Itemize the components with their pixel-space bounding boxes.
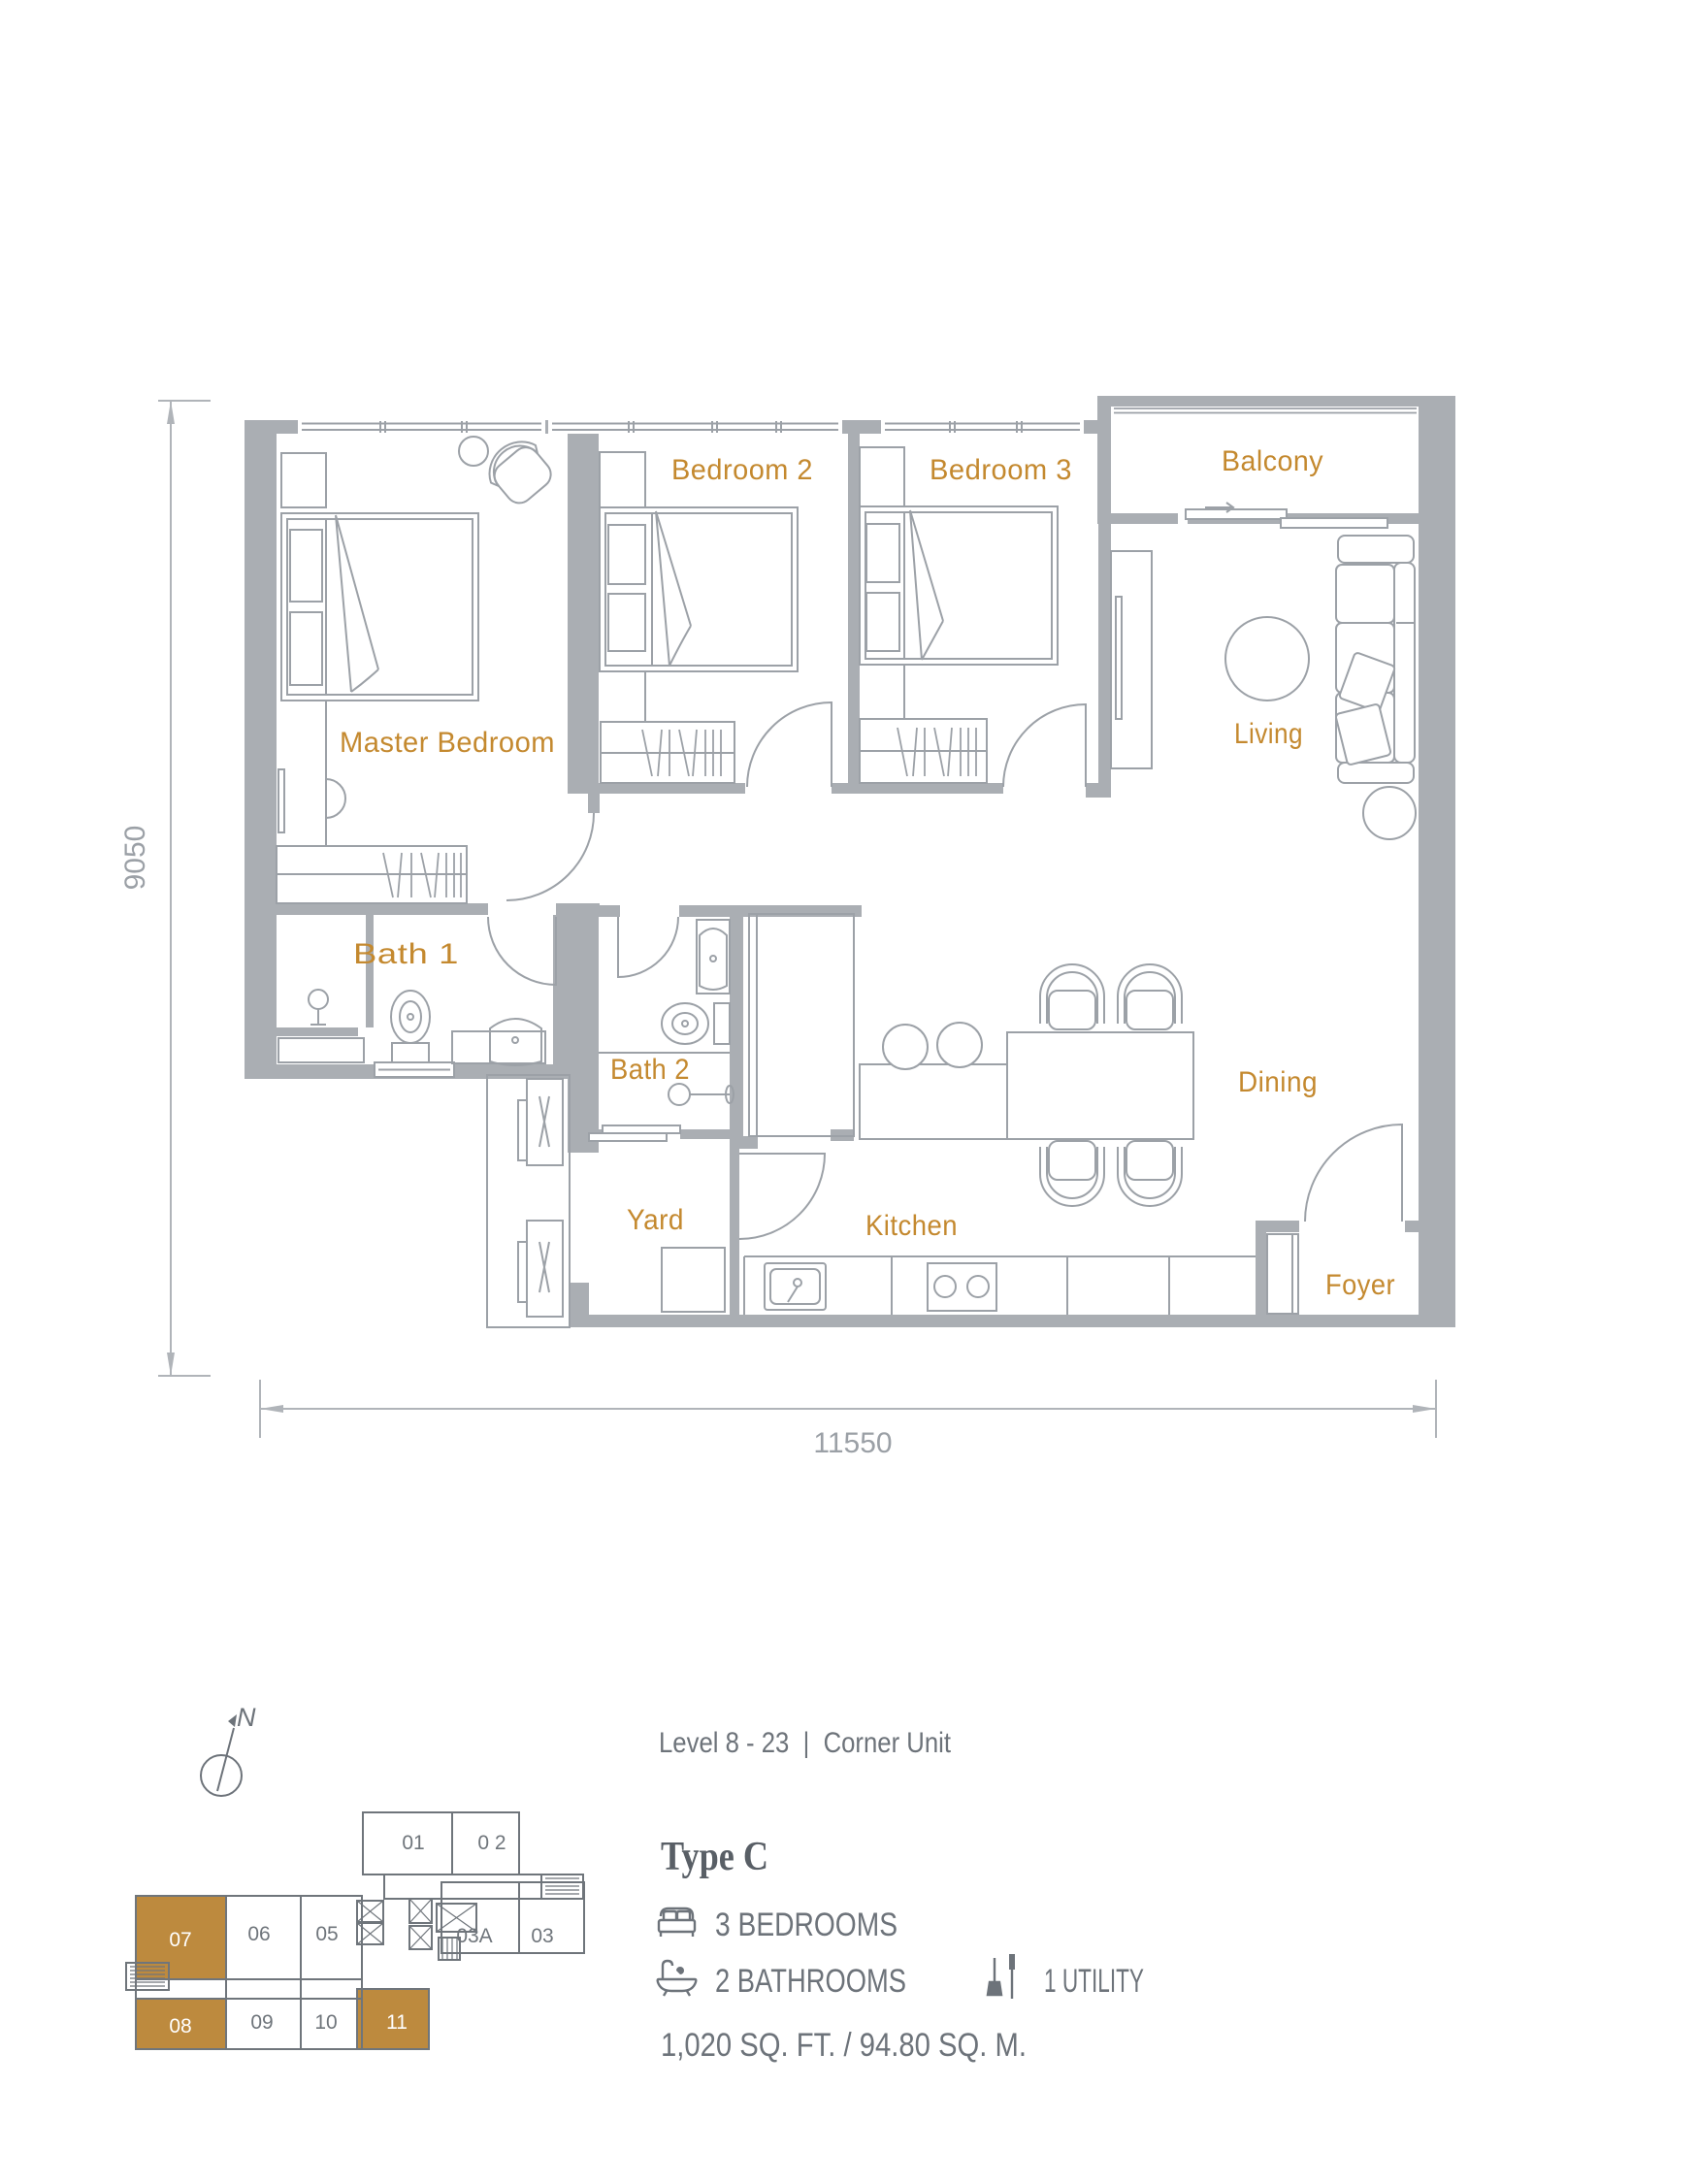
svg-text:Living: Living — [1234, 718, 1303, 750]
svg-text:Bedroom 3: Bedroom 3 — [930, 454, 1072, 486]
svg-text:Balcony: Balcony — [1222, 445, 1323, 477]
svg-text:09: 09 — [250, 2011, 273, 2034]
svg-text:01: 01 — [402, 1832, 424, 1854]
svg-text:08: 08 — [169, 2015, 191, 2037]
svg-text:11550: 11550 — [813, 1427, 892, 1459]
svg-text:07: 07 — [169, 1929, 191, 1951]
svg-text:05: 05 — [315, 1923, 338, 1945]
svg-text:Bath 1: Bath 1 — [353, 938, 459, 970]
svg-text:03A: 03A — [456, 1925, 492, 1947]
svg-text:10: 10 — [314, 2011, 337, 2034]
svg-text:N: N — [237, 1703, 256, 1732]
svg-text:03: 03 — [531, 1925, 553, 1947]
svg-text:Level 8 - 23 | Corner Unit: Level 8 - 23 | Corner Unit — [659, 1727, 952, 1759]
svg-text:11: 11 — [386, 2011, 408, 2034]
svg-text:0 2: 0 2 — [477, 1832, 506, 1854]
svg-text:06: 06 — [247, 1923, 270, 1945]
svg-text:Yard: Yard — [627, 1204, 684, 1236]
svg-text:9050: 9050 — [119, 826, 151, 891]
svg-text:Kitchen: Kitchen — [865, 1210, 958, 1242]
svg-text:Foyer: Foyer — [1325, 1269, 1395, 1301]
svg-text:Bath 2: Bath 2 — [610, 1054, 690, 1086]
svg-text:Dining: Dining — [1238, 1066, 1318, 1098]
svg-text:2 BATHROOMS: 2 BATHROOMS — [715, 1963, 906, 2000]
svg-text:Bedroom 2: Bedroom 2 — [671, 454, 813, 486]
svg-text:1 UTILITY: 1 UTILITY — [1044, 1963, 1144, 2000]
svg-text:Type C: Type C — [661, 1835, 768, 1879]
svg-text:3 BEDROOMS: 3 BEDROOMS — [715, 1907, 897, 1943]
svg-text:Master Bedroom: Master Bedroom — [340, 727, 555, 759]
svg-text:1,020 SQ. FT. / 94.80 SQ. M.: 1,020 SQ. FT. / 94.80 SQ. M. — [661, 2027, 1027, 2064]
